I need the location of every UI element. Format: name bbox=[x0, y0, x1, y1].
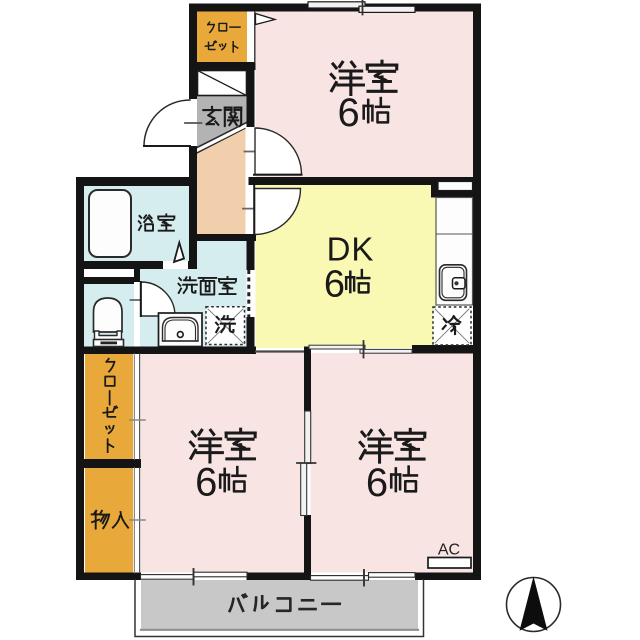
svg-text:6: 6 bbox=[366, 461, 388, 505]
svg-text:DK: DK bbox=[327, 231, 375, 268]
svg-text:6: 6 bbox=[195, 461, 217, 505]
svg-text:6: 6 bbox=[337, 91, 359, 135]
svg-text:6: 6 bbox=[324, 264, 345, 306]
svg-text:AC: AC bbox=[438, 542, 460, 559]
